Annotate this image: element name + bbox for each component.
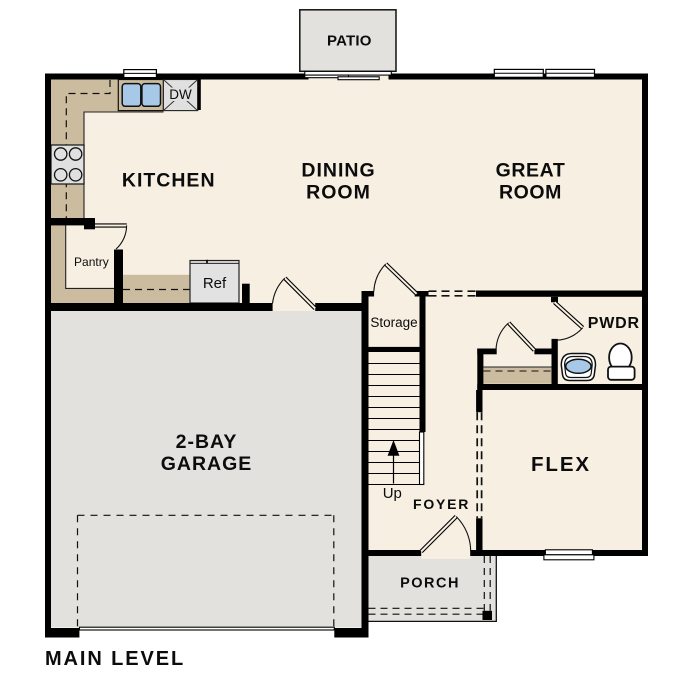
svg-text:MAIN LEVEL: MAIN LEVEL xyxy=(45,648,185,670)
svg-text:Storage: Storage xyxy=(370,315,417,330)
svg-text:PATIO: PATIO xyxy=(327,32,372,49)
svg-text:FLEX: FLEX xyxy=(531,453,591,476)
svg-text:Pantry: Pantry xyxy=(74,255,109,269)
svg-text:DW: DW xyxy=(169,87,192,102)
svg-text:Ref: Ref xyxy=(203,275,227,292)
svg-text:ROOM: ROOM xyxy=(499,181,562,203)
svg-text:GARAGE: GARAGE xyxy=(161,453,253,475)
svg-text:DINING: DINING xyxy=(301,159,375,181)
svg-text:KITCHEN: KITCHEN xyxy=(122,170,216,192)
svg-text:PWDR: PWDR xyxy=(588,315,640,332)
svg-text:ROOM: ROOM xyxy=(306,181,371,203)
svg-text:GREAT: GREAT xyxy=(496,159,566,181)
svg-text:FOYER: FOYER xyxy=(413,496,470,512)
svg-text:Up: Up xyxy=(383,485,402,502)
svg-text:PORCH: PORCH xyxy=(400,576,460,592)
svg-text:2-BAY: 2-BAY xyxy=(176,431,238,453)
